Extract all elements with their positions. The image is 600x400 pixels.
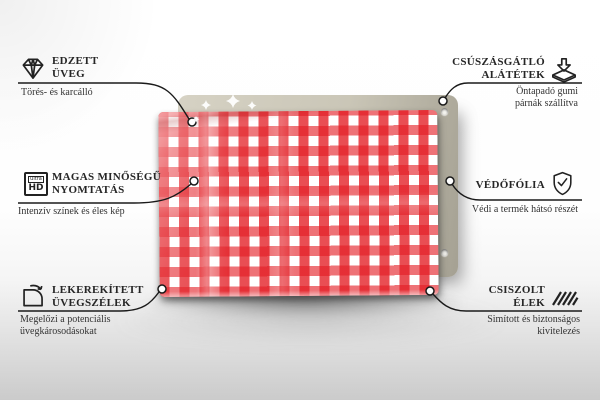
subtitle-line: Megelőzi a potenciális [20, 314, 111, 326]
callout-subtitle-tempered-glass: Törés- és karcálló [21, 87, 93, 99]
title-line: LEKEREKÍTETT [52, 284, 144, 297]
sparkle-icon [201, 100, 211, 110]
connector-lines [18, 83, 582, 311]
callout-title-anti-slip: CSÚSZÁSGÁTLÓ ALÁTÉTEK [440, 56, 545, 81]
subtitle-line: párnák szállítva [440, 98, 578, 110]
title-line: CSISZOLT [445, 284, 545, 297]
subtitle-line: Öntapadó gumi [440, 86, 578, 98]
ultra-hd-icon: ultra HD [24, 172, 48, 196]
title-line: EDZETT [52, 55, 98, 68]
subtitle-line: Védi a termék hátsó részét [430, 204, 578, 216]
callout-title-tempered-glass: EDZETT ÜVEG [52, 55, 98, 80]
title-line: CSÚSZÁSGÁTLÓ [440, 56, 545, 69]
callout-title-protective-film: VÉDŐFÓLIA [445, 179, 545, 192]
title-line: ÜVEG [52, 68, 98, 81]
title-line: ÉLEK [445, 297, 545, 310]
subtitle-line: kivitelezés [438, 326, 580, 338]
shield-check-icon [550, 170, 575, 197]
ultra-hd-icon-top-text: ultra [28, 176, 44, 183]
callout-subtitle-anti-slip: Öntapadó gumi párnák szállítva [440, 86, 578, 109]
polished-edges-icon [551, 283, 579, 307]
connector-dot [158, 285, 166, 293]
callout-title-rounded-edges: LEKEREKÍTETT ÜVEGSZÉLEK [52, 284, 144, 309]
callout-subtitle-rounded-edges: Megelőzi a potenciális üvegkárosodásokat [20, 314, 111, 337]
sparkle-icon [226, 94, 240, 108]
connector-dot [426, 287, 434, 295]
ultra-hd-icon-bottom-text: HD [28, 184, 43, 192]
diamond-icon [19, 56, 47, 81]
connector-dots [158, 97, 454, 295]
subtitle-line: üvegkárosodásokat [20, 326, 111, 338]
callout-subtitle-polished-edges: Simított és biztonságos kivitelezés [438, 314, 580, 337]
title-line: NYOMTATÁS [52, 184, 161, 197]
title-line: MAGAS MINŐSÉGŰ [52, 171, 161, 184]
anti-slip-pads-icon [549, 56, 579, 85]
subtitle-line: Simított és biztonságos [438, 314, 580, 326]
subtitle-line: Intenzív színek és éles kép [18, 206, 125, 218]
connector-dot [190, 177, 198, 185]
title-line: ALÁTÉTEK [440, 69, 545, 82]
callout-title-print-quality: MAGAS MINŐSÉGŰ NYOMTATÁS [52, 171, 161, 196]
title-line: ÜVEGSZÉLEK [52, 297, 144, 310]
callout-subtitle-print-quality: Intenzív színek és éles kép [18, 206, 125, 218]
sparkle-icon [248, 101, 257, 110]
callout-title-polished-edges: CSISZOLT ÉLEK [445, 284, 545, 309]
callout-subtitle-protective-film: Védi a termék hátsó részét [430, 204, 578, 216]
sparkle-glints [193, 94, 257, 123]
subtitle-line: Törés- és karcálló [21, 87, 93, 99]
title-line: VÉDŐFÓLIA [445, 179, 545, 192]
product-infographic: EDZETT ÜVEG Törés- és karcálló ultra HD … [0, 0, 600, 400]
rounded-corner-icon [19, 282, 46, 309]
